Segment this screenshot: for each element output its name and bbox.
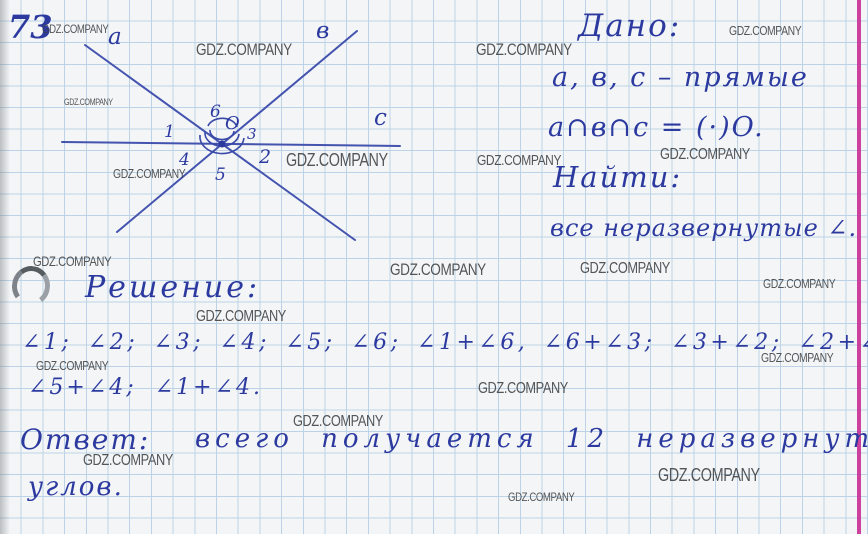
figure-label-O: O <box>225 113 240 134</box>
watermark: GDZ.COMPANY <box>113 166 185 181</box>
hole-punch <box>9 264 52 309</box>
page-edge-shadow <box>0 0 10 534</box>
figure-label-в: в <box>316 22 329 44</box>
solution-line-1: ∠1; ∠2; ∠3; ∠4; ∠5; ∠6; ∠1+∠6, ∠6+∠3; ∠3… <box>22 330 868 355</box>
watermark: GDZ.COMPANY <box>763 276 835 291</box>
watermark: GDZ.COMPANY <box>83 452 173 470</box>
watermark: GDZ.COMPANY <box>660 146 750 164</box>
find-line-1: все неразвернутые ∠. <box>550 214 857 242</box>
watermark: GDZ.COMPANY <box>64 97 113 107</box>
watermark: GDZ.COMPANY <box>196 40 292 60</box>
watermark: GDZ.COMPANY <box>476 40 572 60</box>
figure-label-2: 2 <box>258 146 271 168</box>
notebook-page: 73 aвcO163452 Дано: а, в, с – прямые а∩в… <box>0 0 868 534</box>
watermark: GDZ.COMPANY <box>729 23 801 38</box>
figure-label-a: a <box>108 24 122 50</box>
given-heading: Дано: <box>578 8 681 44</box>
solution-heading: Решение: <box>85 270 260 305</box>
figure-label-1: 1 <box>164 122 175 142</box>
figure-label-6: 6 <box>210 102 221 122</box>
watermark: GDZ.COMPANY <box>286 150 388 171</box>
figure-label-5: 5 <box>215 165 226 185</box>
watermark: GDZ.COMPANY <box>477 152 561 169</box>
watermark: GDZ.COMPANY <box>761 350 833 365</box>
figure-label-3: 3 <box>247 125 257 143</box>
watermark: GDZ.COMPANY <box>658 465 760 486</box>
point-O-dot <box>219 141 226 148</box>
answer-text-2: углов. <box>28 472 124 502</box>
watermark: GDZ.COMPANY <box>196 308 286 326</box>
watermark: GDZ.COMPANY <box>478 380 568 398</box>
given-line-1: а, в, с – прямые <box>552 62 809 93</box>
watermark: GDZ.COMPANY <box>42 22 108 36</box>
watermark: GDZ.COMPANY <box>36 358 108 373</box>
given-line-2: а∩в∩с = (·)O. <box>548 112 765 143</box>
watermark: GDZ.COMPANY <box>33 253 111 269</box>
watermark: GDZ.COMPANY <box>508 490 574 504</box>
solution-line-2: ∠5+∠4; ∠1+∠4. <box>28 375 263 400</box>
watermark: GDZ.COMPANY <box>580 260 670 278</box>
find-heading: Найти: <box>553 160 682 194</box>
watermark: GDZ.COMPANY <box>293 413 383 431</box>
figure-label-c: c <box>374 105 387 131</box>
watermark: GDZ.COMPANY <box>390 260 486 280</box>
